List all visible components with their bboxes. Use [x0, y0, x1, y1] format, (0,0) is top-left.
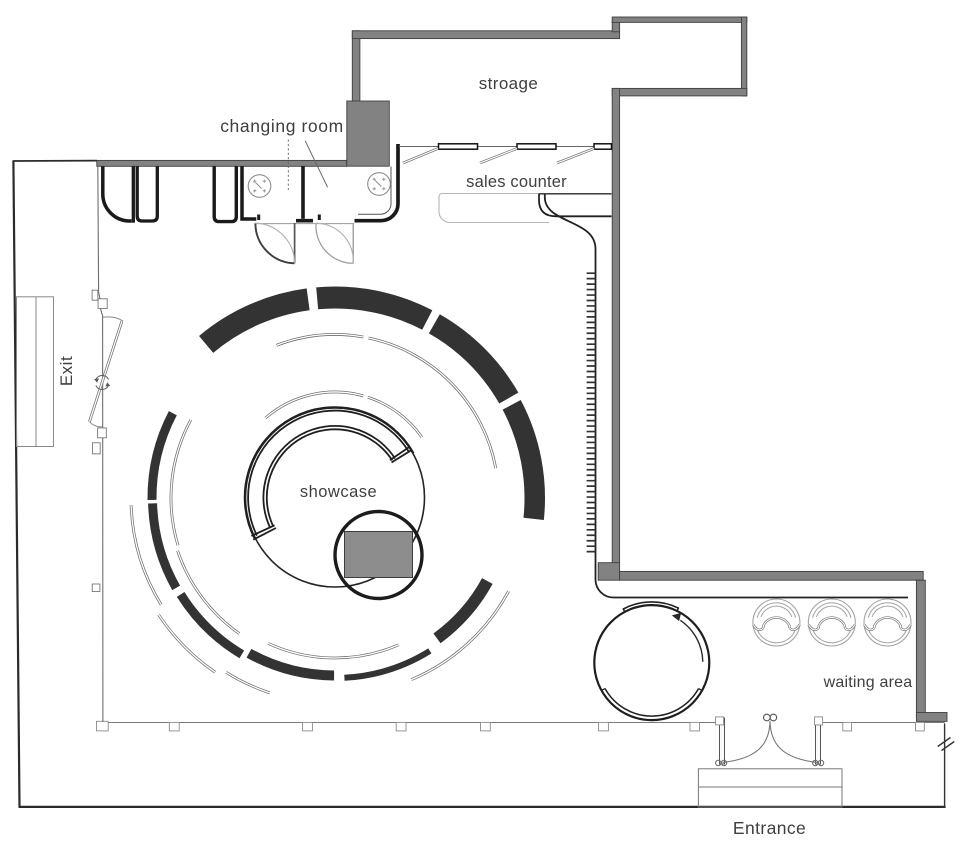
svg-text:changing room: changing room — [220, 116, 344, 136]
svg-text:Exit: Exit — [57, 356, 76, 386]
svg-text:waiting area: waiting area — [823, 674, 913, 691]
svg-text:stroage: stroage — [479, 74, 539, 93]
svg-text:showcase: showcase — [300, 483, 377, 501]
svg-text:Entrance: Entrance — [733, 818, 806, 838]
svg-text:sales counter: sales counter — [466, 173, 567, 191]
